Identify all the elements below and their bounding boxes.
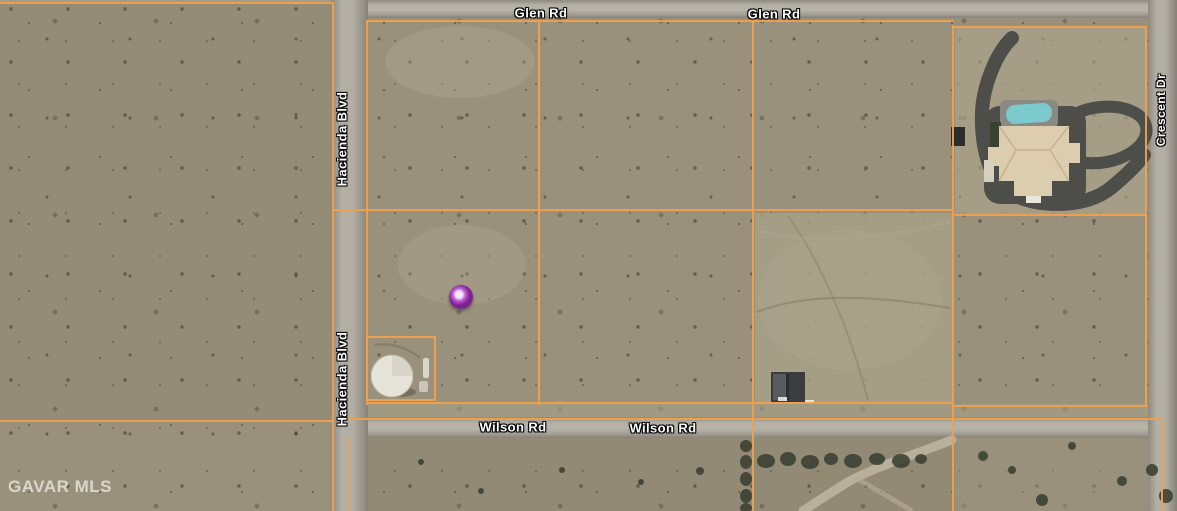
road-label-hacienda-blvd: Hacienda Blvd (336, 332, 349, 427)
parcel-boundary-line (952, 26, 1147, 28)
parcel-boundary-line (366, 20, 954, 22)
road-label-wilson-rd: Wilson Rd (629, 422, 696, 435)
parcel-boundary-line (1145, 27, 1147, 406)
parcel-boundary-line (332, 209, 954, 211)
parcel-boundary-line (538, 21, 540, 405)
water-tank-parcel-boundary (366, 336, 436, 401)
house-compound (951, 38, 1146, 204)
road-label-glen-rd: Glen Rd (515, 7, 568, 20)
parcel-boundary-line (1161, 421, 1163, 511)
parcel-boundary-line (0, 2, 333, 4)
parcel-boundary-line (332, 2, 334, 511)
road-label-glen-rd: Glen Rd (748, 8, 801, 21)
parcel-boundary-line (952, 25, 954, 511)
swimming-pool (1005, 102, 1052, 124)
dirt-path-south (803, 440, 952, 511)
map-art-layer (0, 0, 1177, 511)
satellite-map-canvas[interactable]: Glen Rd Glen Rd Wilson Rd Wilson Rd Haci… (0, 0, 1177, 511)
parcel-boundary-line (347, 437, 349, 511)
parcel-boundary-line (952, 405, 1147, 407)
mls-watermark: GAVAR MLS (8, 477, 112, 497)
parcel-boundary-line (952, 214, 1147, 216)
tree-cluster (418, 440, 1173, 511)
parcel-boundary-line (346, 418, 1163, 420)
road-label-crescent-dr: Crescent Dr (1155, 74, 1167, 146)
parcel-boundary-line (752, 21, 754, 511)
property-location-marker[interactable] (449, 285, 473, 309)
shed-building (771, 372, 814, 404)
parcel-boundary-line (0, 420, 333, 422)
road-label-hacienda-blvd: Hacienda Blvd (336, 92, 349, 187)
road-label-wilson-rd: Wilson Rd (479, 421, 546, 434)
parcel-boundary-line (366, 402, 954, 404)
